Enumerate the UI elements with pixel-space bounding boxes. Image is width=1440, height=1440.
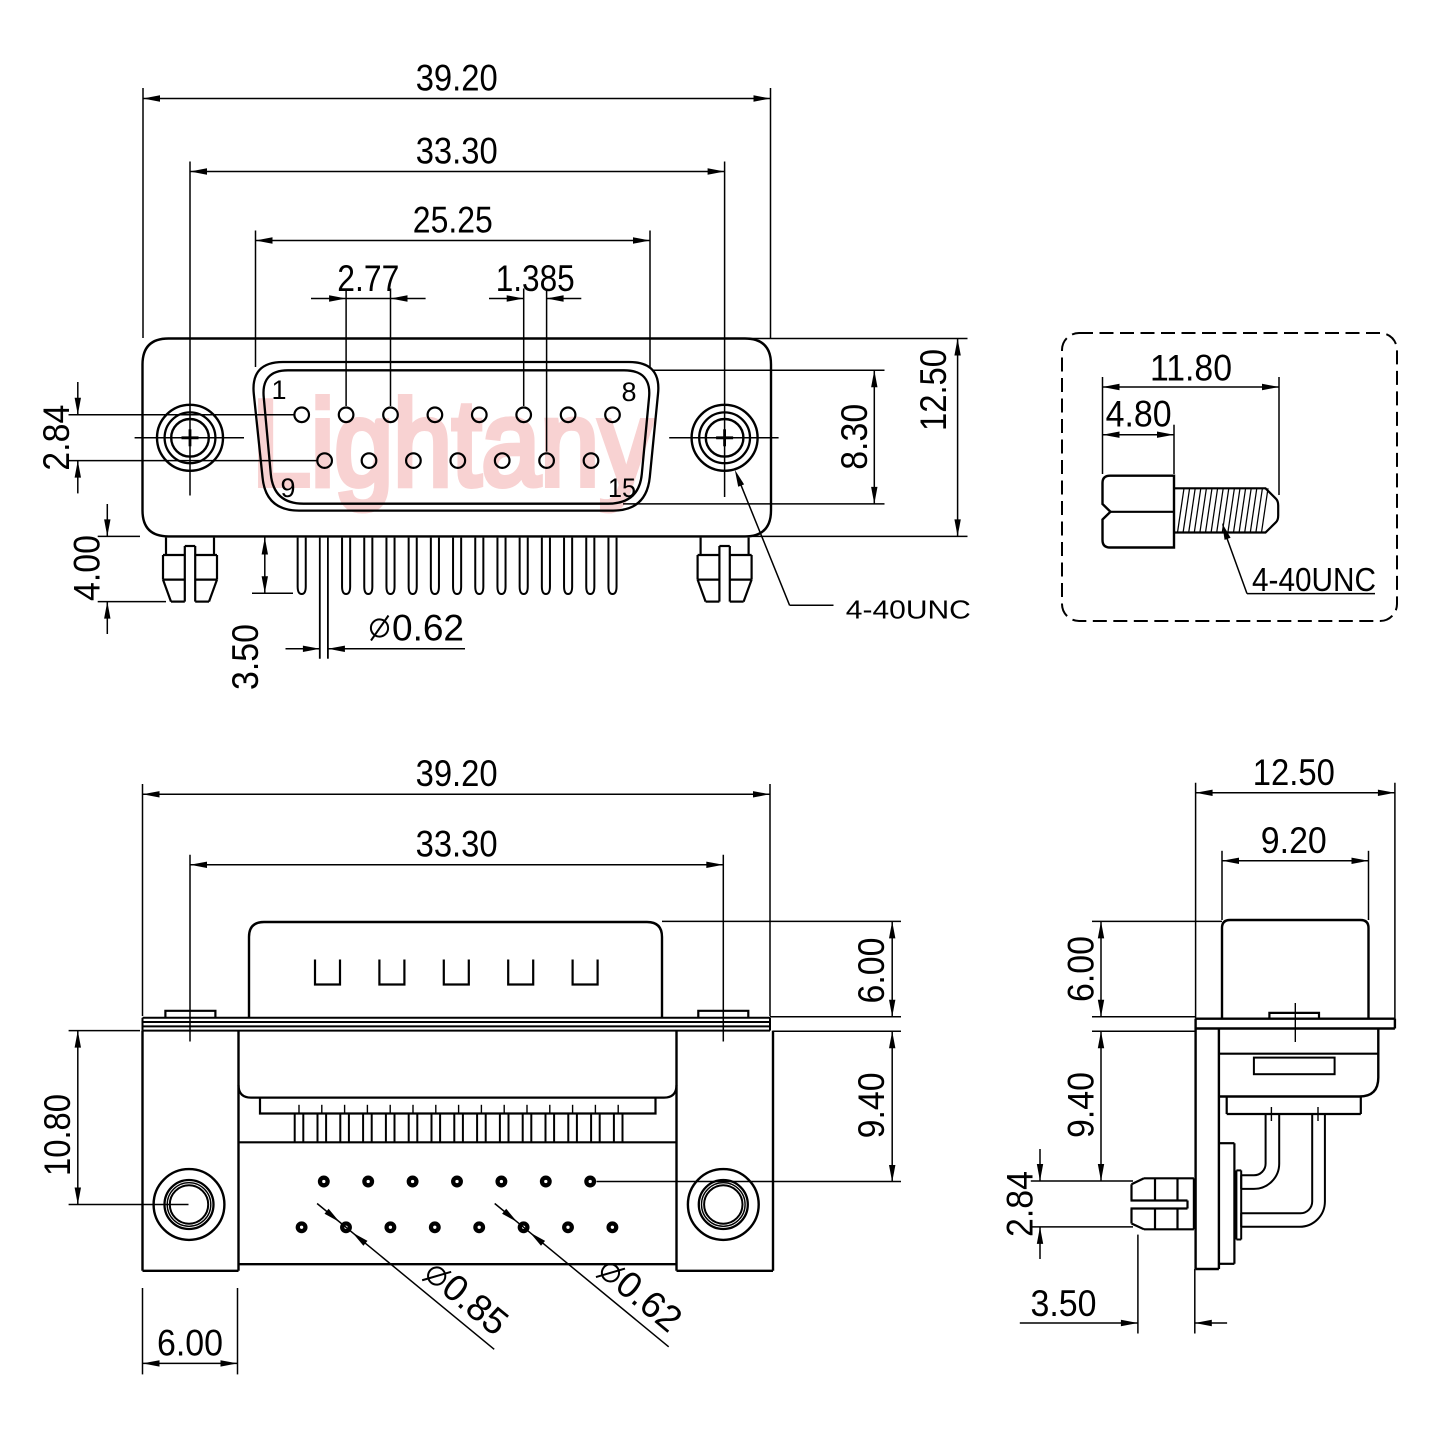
svg-text:1.385: 1.385: [496, 258, 575, 299]
svg-text:39.20: 39.20: [416, 58, 498, 99]
svg-text:8.30: 8.30: [834, 404, 875, 470]
svg-text:3.50: 3.50: [225, 624, 266, 690]
svg-text:33.30: 33.30: [416, 131, 498, 172]
svg-text:6.00: 6.00: [157, 1322, 223, 1363]
svg-text:2.84: 2.84: [36, 405, 77, 471]
svg-text:4.00: 4.00: [67, 535, 108, 601]
svg-text:0.62: 0.62: [392, 608, 464, 649]
svg-text:9: 9: [280, 473, 295, 503]
svg-text:12.50: 12.50: [913, 349, 954, 431]
svg-text:10.80: 10.80: [37, 1094, 78, 1176]
svg-text:4-40UNC: 4-40UNC: [846, 595, 971, 625]
svg-text:11.80: 11.80: [1150, 348, 1232, 389]
svg-text:25.25: 25.25: [413, 200, 493, 241]
svg-text:6.00: 6.00: [1060, 936, 1101, 1002]
svg-text:9.40: 9.40: [1060, 1072, 1101, 1138]
svg-text:39.20: 39.20: [416, 753, 498, 794]
svg-text:1: 1: [271, 375, 286, 405]
svg-text:6.00: 6.00: [851, 938, 892, 1004]
svg-text:Lightany: Lightany: [252, 375, 652, 511]
svg-text:4.80: 4.80: [1106, 394, 1172, 435]
svg-text:15: 15: [608, 473, 636, 503]
svg-text:4-40UNC: 4-40UNC: [1252, 561, 1376, 598]
svg-text:9.20: 9.20: [1261, 820, 1327, 861]
svg-text:12.50: 12.50: [1253, 752, 1335, 793]
svg-text:2.84: 2.84: [1000, 1171, 1041, 1237]
svg-text:2.77: 2.77: [337, 258, 399, 299]
svg-text:8: 8: [621, 377, 636, 407]
svg-text:9.40: 9.40: [851, 1072, 892, 1138]
svg-text:3.50: 3.50: [1031, 1283, 1097, 1324]
svg-text:33.30: 33.30: [416, 824, 498, 865]
